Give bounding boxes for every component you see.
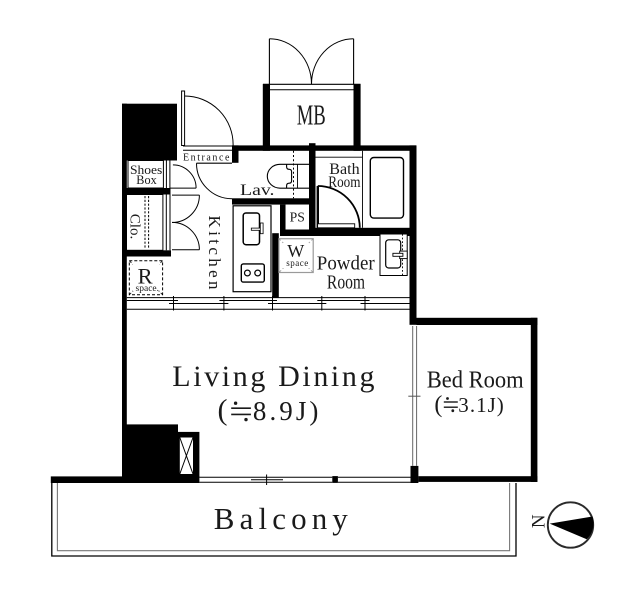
- svg-text:Entrance: Entrance: [183, 152, 230, 163]
- svg-text:PS: PS: [290, 209, 305, 224]
- svg-text:3.1J): 3.1J): [458, 393, 504, 417]
- svg-text:Bed Room: Bed Room: [427, 367, 524, 393]
- svg-text:8.9J): 8.9J): [253, 396, 319, 426]
- svg-text:space.: space.: [136, 284, 159, 294]
- svg-text:Box: Box: [136, 172, 157, 187]
- svg-text:Room: Room: [327, 272, 365, 294]
- svg-text:Lav.: Lav.: [240, 182, 274, 199]
- svg-text:space: space: [286, 258, 308, 268]
- svg-text:(: (: [218, 394, 228, 427]
- svg-text:Clo.: Clo.: [126, 214, 142, 239]
- svg-text:MB: MB: [297, 101, 326, 132]
- svg-text:N: N: [529, 514, 550, 528]
- svg-text:(: (: [434, 392, 442, 418]
